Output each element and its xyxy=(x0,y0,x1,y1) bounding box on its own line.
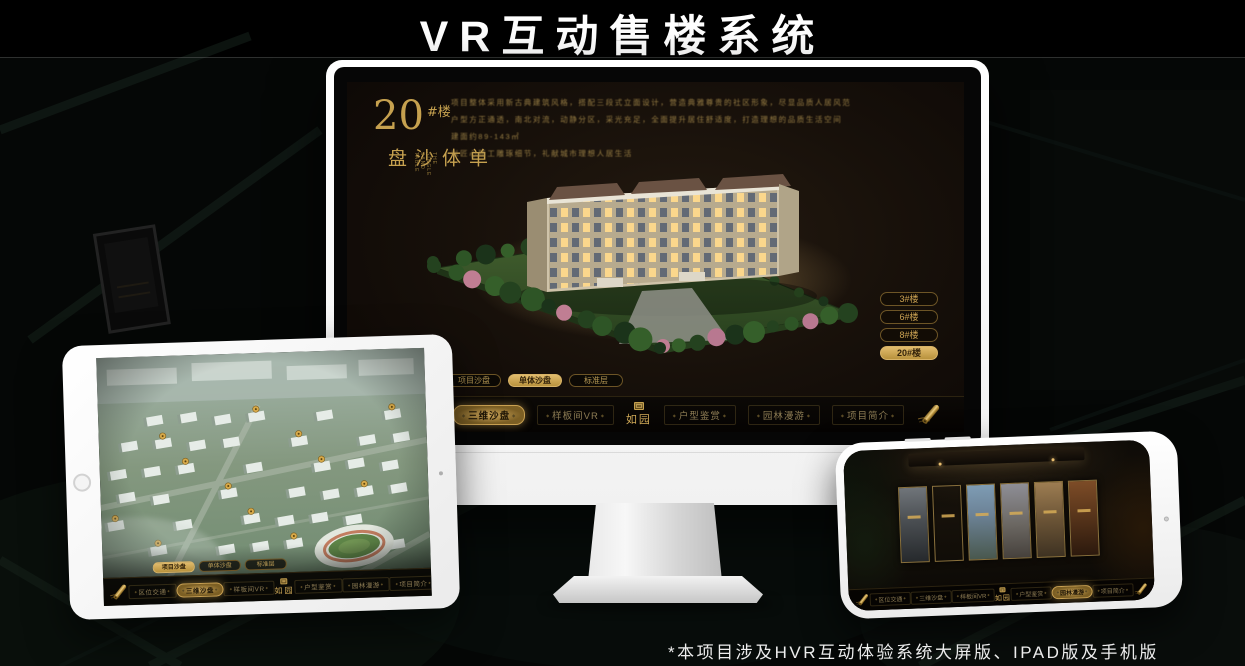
building-model xyxy=(527,174,799,292)
ruyuan-logo: 如园 xyxy=(274,578,295,597)
gallery-card-caption xyxy=(1043,510,1056,513)
scroll-icon[interactable] xyxy=(855,592,871,608)
gallery-card[interactable] xyxy=(898,486,930,563)
nav-item[interactable]: 项目简介 xyxy=(1092,583,1133,598)
building-3d-sandtable[interactable] xyxy=(427,160,867,358)
gallery-card-caption xyxy=(941,514,954,517)
footnote-text: *本项目涉及HVR互动体验系统大屏版、IPAD版及手机版 xyxy=(668,638,1159,663)
scroll-icon[interactable] xyxy=(916,402,942,428)
logo-text: 如园 xyxy=(274,585,294,597)
view-tab[interactable]: 标准层 xyxy=(569,374,623,387)
volume-button[interactable] xyxy=(945,436,971,440)
view-tab[interactable]: 项目沙盘 xyxy=(153,561,195,573)
nav-item[interactable]: 园林漫游 xyxy=(748,405,820,425)
nav-item[interactable]: 三维沙盘 xyxy=(911,590,952,605)
scroll-icon[interactable] xyxy=(1133,582,1149,598)
logo-mark-icon xyxy=(281,578,288,584)
gallery-card-caption xyxy=(975,513,988,516)
gallery-card[interactable] xyxy=(932,485,964,562)
intro-line: 项目整体采用新古典建筑风格，搭配三段式立面设计，营造典雅尊贵的社区形象，尽显品质… xyxy=(451,97,891,108)
view-tab[interactable]: 单体沙盘 xyxy=(199,560,241,572)
logo-text: 如园 xyxy=(626,411,652,427)
nav-item[interactable]: 户型鉴赏 xyxy=(1011,586,1052,601)
poster-canvas: VR互动售楼系统 20 #楼 单体沙盘 THE SINGLE SAND TABL… xyxy=(0,0,1245,666)
nav-item[interactable]: 项目简介 xyxy=(832,405,904,425)
nav-item[interactable]: 样板间VR xyxy=(951,589,994,604)
logo-mark-icon xyxy=(634,402,644,410)
building-button[interactable]: 8#楼 xyxy=(880,328,938,342)
phone-device: 区位交通三维沙盘样板间VR如园户型鉴赏园林漫游项目简介 xyxy=(835,431,1184,620)
monitor-stand-base xyxy=(553,576,763,603)
building-heading: 20 #楼 单体沙盘 THE SINGLE SAND TABLE xyxy=(373,96,451,136)
building-selector-group: 3#楼6#楼8#楼20#楼 xyxy=(880,292,938,360)
gallery-card-caption xyxy=(907,516,920,519)
view-tab[interactable]: 项目沙盘 xyxy=(447,374,501,387)
volume-button[interactable] xyxy=(905,438,931,442)
building-number-unit: #楼 xyxy=(427,101,451,120)
building-number: 20 xyxy=(373,96,424,136)
nav-item[interactable]: 园林漫游 xyxy=(1051,585,1092,600)
scene-gallery xyxy=(898,480,1100,564)
phone-screen: 区位交通三维沙盘样板间VR如园户型鉴赏园林漫游项目简介 xyxy=(843,440,1155,612)
nav-item[interactable]: 样板间VR xyxy=(537,405,614,425)
building-button[interactable]: 3#楼 xyxy=(880,292,938,306)
gallery-card[interactable] xyxy=(966,484,998,561)
logo-text: 如园 xyxy=(995,592,1011,603)
nav-item[interactable]: 三维沙盘 xyxy=(176,582,224,597)
front-camera-dot xyxy=(1164,516,1169,521)
intro-paragraph: 项目整体采用新古典建筑风格，搭配三段式立面设计，营造典雅尊贵的社区形象，尽显品质… xyxy=(451,97,891,165)
gallery-card[interactable] xyxy=(1068,480,1100,557)
nav-item[interactable]: 三维沙盘 xyxy=(453,405,525,425)
page-title: VR互动售楼系统 xyxy=(0,2,1245,64)
home-button[interactable] xyxy=(73,473,92,492)
nav-item[interactable]: 户型鉴赏 xyxy=(664,405,736,425)
ruyuan-logo: 如园 xyxy=(626,402,652,427)
logo-mark-icon xyxy=(999,587,1005,592)
view-tab[interactable]: 标准层 xyxy=(245,558,287,570)
title-divider xyxy=(0,57,1245,58)
building-button[interactable]: 6#楼 xyxy=(880,310,938,324)
gallery-card[interactable] xyxy=(1000,482,1032,559)
camera-dot xyxy=(439,471,443,475)
tablet-screen: 项目沙盘单体沙盘标准层 区位交通三维沙盘样板间VR如园户型鉴赏园林漫游项目简介 xyxy=(96,348,432,606)
intro-line: 户型方正通透，南北对流，动静分区，采光充足，全面提升居住舒适度，打造理想的品质生… xyxy=(451,114,891,125)
nav-item[interactable]: 园林漫游 xyxy=(342,577,390,592)
gallery-card-caption xyxy=(1077,509,1090,512)
building-button[interactable]: 20#楼 xyxy=(880,346,938,360)
nav-item[interactable]: 样板间VR xyxy=(224,580,275,596)
tablet-device: 项目沙盘单体沙盘标准层 区位交通三维沙盘样板间VR如园户型鉴赏园林漫游项目简介 xyxy=(62,334,460,620)
nav-item[interactable]: 区位交通 xyxy=(870,592,911,607)
scroll-icon[interactable] xyxy=(108,582,129,603)
monitor-stand xyxy=(588,503,722,581)
nav-item[interactable]: 项目简介 xyxy=(389,575,431,590)
intro-line: 以匠心精工雕琢细节，礼献城市理想人居生活 xyxy=(451,148,891,159)
gallery-card-caption xyxy=(1009,512,1022,515)
intro-line: 建面约89-143㎡ xyxy=(451,131,891,142)
view-tab[interactable]: 单体沙盘 xyxy=(508,374,562,387)
ruyuan-logo: 如园 xyxy=(994,586,1011,603)
view-tab-group: 项目沙盘单体沙盘标准层 xyxy=(447,374,623,387)
nav-item[interactable]: 区位交通 xyxy=(128,583,176,598)
nav-item[interactable]: 户型鉴赏 xyxy=(294,578,342,593)
gallery-card[interactable] xyxy=(1034,481,1066,558)
